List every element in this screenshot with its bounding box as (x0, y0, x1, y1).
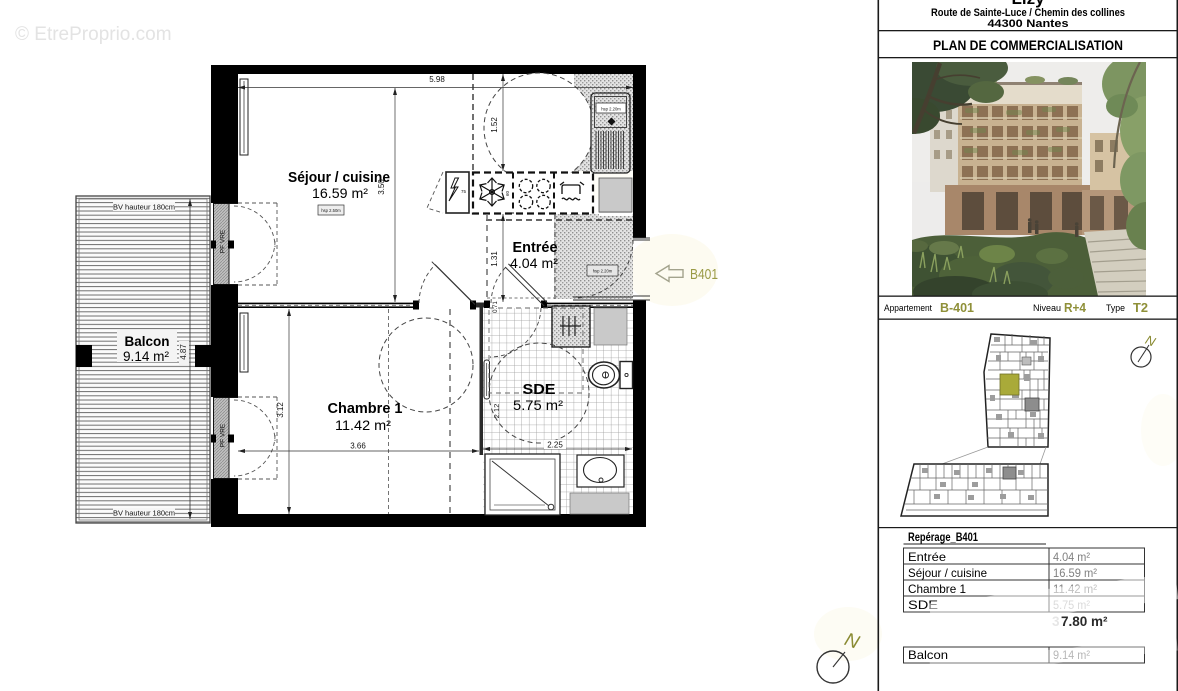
svg-text:SDE: SDE (523, 382, 556, 398)
svg-text:2.25: 2.25 (547, 441, 563, 450)
svg-text:4.04 m²: 4.04 m² (1053, 550, 1090, 564)
svg-text:2.12: 2.12 (492, 404, 501, 419)
svg-text:Repérage_B401: Repérage_B401 (908, 532, 978, 544)
svg-text:Séjour / cuisine: Séjour / cuisine (288, 170, 390, 186)
svg-text:Entrée: Entrée (908, 550, 946, 564)
svg-text:PLAN DE COMMERCIALISATION: PLAN DE COMMERCIALISATION (933, 38, 1123, 53)
svg-text:Balcon: Balcon (125, 333, 170, 349)
svg-text:hsp 2.50m: hsp 2.50m (321, 208, 341, 213)
svg-text:7.80 m²: 7.80 m² (1061, 614, 1108, 629)
svg-text:Séjour / cuisine: Séjour / cuisine (908, 566, 987, 580)
svg-text:Balcon: Balcon (908, 648, 948, 662)
svg-text:PF VRE: PF VRE (220, 423, 227, 447)
svg-text:4.04 m²: 4.04 m² (510, 255, 558, 271)
svg-text:hsp 2.20m: hsp 2.20m (593, 269, 613, 274)
svg-text:3.12: 3.12 (276, 402, 285, 418)
svg-text:PF VRE: PF VRE (220, 229, 227, 253)
svg-text:75: 75 (461, 189, 467, 194)
svg-text:3.50: 3.50 (377, 179, 386, 195)
svg-text:Chambre 1: Chambre 1 (328, 401, 403, 417)
svg-text:1.52: 1.52 (490, 117, 499, 133)
svg-text:16.59 m²: 16.59 m² (1053, 566, 1097, 580)
svg-text:B-401: B-401 (940, 301, 974, 315)
svg-text:4.87: 4.87 (179, 344, 188, 360)
svg-text:Chambre 1: Chambre 1 (908, 582, 966, 596)
svg-text:5.75 m²: 5.75 m² (513, 397, 563, 413)
svg-text:0.71: 0.71 (493, 301, 499, 313)
svg-text:3.66: 3.66 (350, 442, 366, 451)
svg-text:hsp 2.20m: hsp 2.20m (601, 107, 621, 112)
svg-text:44300 Nantes: 44300 Nantes (988, 18, 1069, 30)
svg-text:R+4: R+4 (1064, 301, 1086, 315)
svg-text:B401: B401 (690, 266, 718, 283)
svg-text:Appartement: Appartement (884, 303, 932, 313)
svg-text:Type: Type (1106, 303, 1125, 313)
svg-text:Niveau: Niveau (1033, 303, 1061, 313)
svg-text:1.31: 1.31 (490, 251, 499, 267)
svg-text:16.59 m²: 16.59 m² (312, 185, 368, 201)
svg-text:11.42 m²: 11.42 m² (335, 417, 391, 433)
svg-text:5.98: 5.98 (429, 75, 445, 84)
svg-text:© EtreProprio.com: © EtreProprio.com (15, 24, 172, 45)
svg-text:60: 60 (505, 190, 510, 196)
svg-text:Entrée: Entrée (513, 240, 558, 256)
svg-text:T2: T2 (1133, 301, 1148, 315)
svg-text:BV hauteur 180cm: BV hauteur 180cm (113, 509, 175, 518)
svg-text:9.14 m²: 9.14 m² (123, 349, 169, 364)
svg-text:BV hauteur 180cm: BV hauteur 180cm (113, 203, 175, 212)
